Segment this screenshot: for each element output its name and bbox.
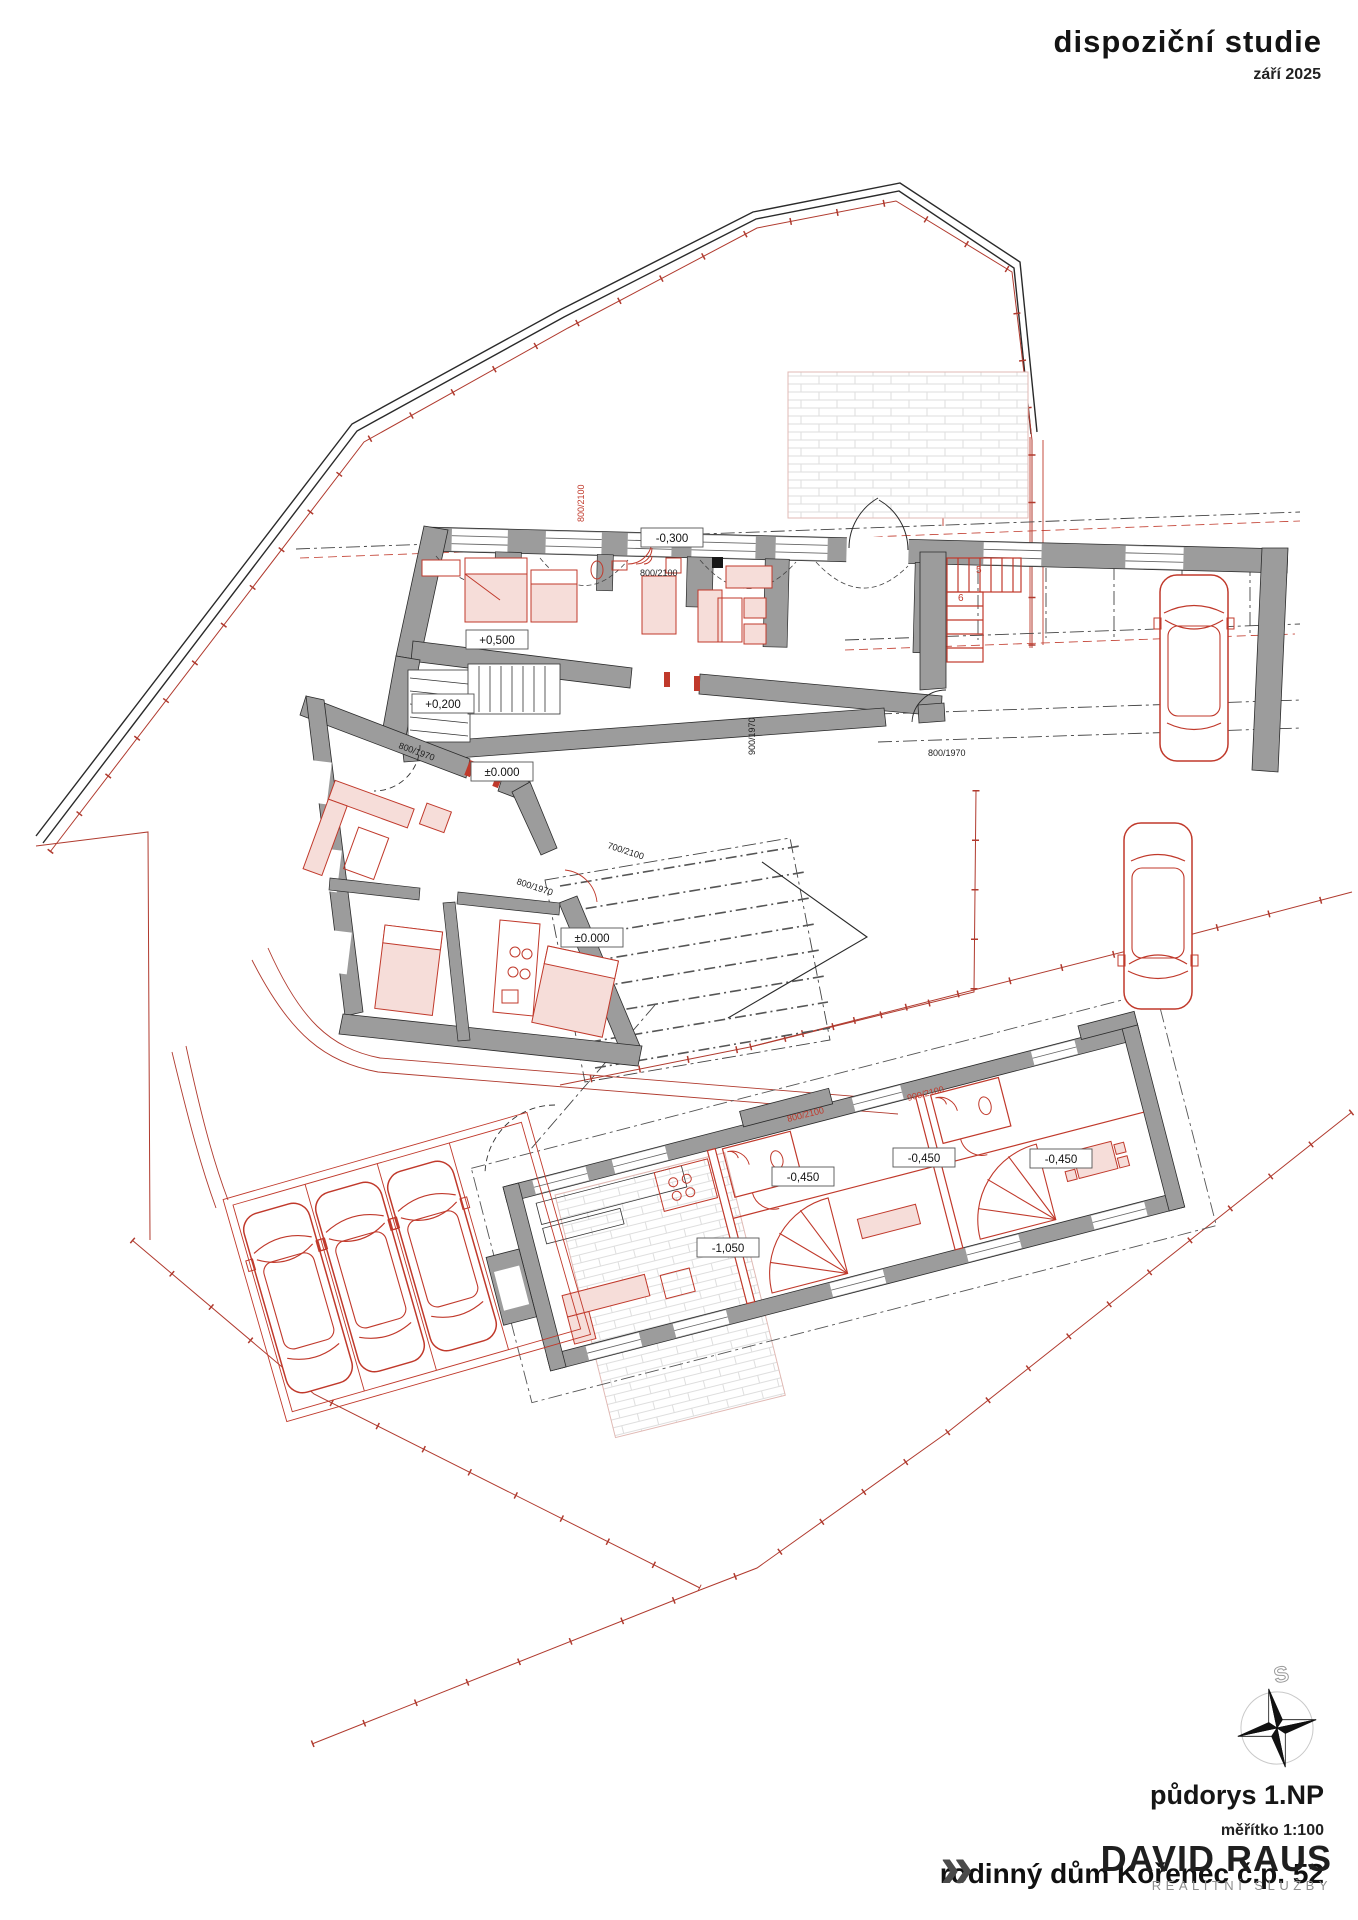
svg-text:±0.000: ±0.000: [574, 933, 609, 945]
svg-text:-0,450: -0,450: [908, 1153, 941, 1165]
svg-text:900/1970: 900/1970: [747, 717, 757, 755]
terrace-brick-north: [788, 372, 1028, 518]
plan-title: půdorys 1.NP: [1150, 1780, 1324, 1811]
hall-stair: [468, 664, 560, 714]
site-plan: +0,500 +0,200 ±0.000 -0,300 ±0.000 -0,45…: [0, 0, 1358, 1920]
svg-text:±0.000: ±0.000: [484, 767, 519, 779]
brand-tagline: REALITNÍ SLUŽBY: [912, 1878, 1332, 1893]
svg-text:5: 5: [976, 565, 982, 576]
kitchen: [493, 920, 540, 1016]
sheet-date: září 2025: [1253, 66, 1321, 84]
canopy-outline: [728, 862, 867, 1018]
svg-text:6: 6: [958, 593, 964, 604]
court-stair: [947, 558, 1021, 662]
svg-text:-0,300: -0,300: [656, 533, 689, 545]
brand-watermark: » DAVID RAUS REALITNÍ SLUŽBY: [912, 1840, 1332, 1893]
brand-chevron-icon: »: [940, 1832, 973, 1901]
svg-text:-1,050: -1,050: [712, 1243, 745, 1255]
fireplace-icon: [712, 557, 723, 568]
svg-text:700/2100: 700/2100: [606, 840, 645, 861]
bedroom-furniture: [422, 558, 577, 622]
svg-text:800/2100: 800/2100: [576, 484, 586, 522]
svg-text:800/1970: 800/1970: [928, 748, 966, 758]
svg-text:+0,500: +0,500: [479, 635, 515, 647]
svg-text:+0,200: +0,200: [425, 699, 461, 711]
svg-text:S: S: [1272, 1661, 1292, 1689]
drawing-sheet: dispoziční studie září 2025: [0, 0, 1358, 1920]
svg-text:800/2100: 800/2100: [640, 568, 678, 578]
sheet-title: dispoziční studie: [1054, 24, 1322, 60]
brand-name: DAVID RAUS: [912, 1840, 1332, 1878]
svg-text:-0,450: -0,450: [787, 1172, 820, 1184]
compass-rose: S: [1225, 1657, 1325, 1775]
courtyard-car: [1118, 823, 1198, 1009]
garage-car: [1154, 575, 1234, 761]
svg-text:-0,450: -0,450: [1045, 1154, 1078, 1166]
